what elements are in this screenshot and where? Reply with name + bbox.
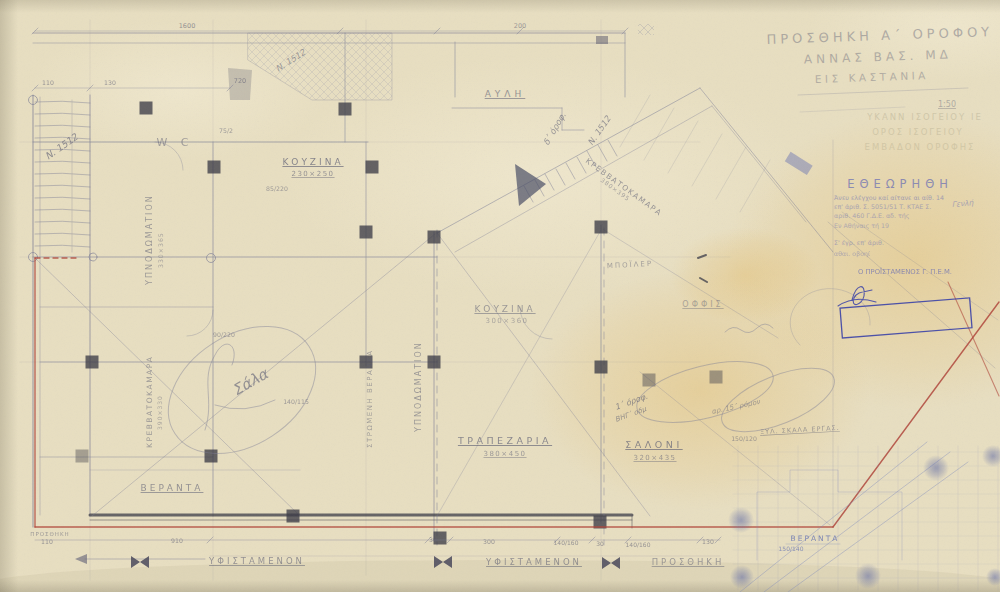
scanned-blueprint-page: ΠΡΟΣΘΗΚΗ Α΄ ΟΡΟΦΟΥ ΑΝΝΑΣ ΒΑΣ. ΜΔ ΕΙΣ ΚΑΣ… — [0, 0, 1000, 592]
paper-grain-texture — [0, 0, 1000, 592]
floor-plan-drawing: ΠΡΟΣΘΗΚΗ Α΄ ΟΡΟΦΟΥ ΑΝΝΑΣ ΒΑΣ. ΜΔ ΕΙΣ ΚΑΣ… — [0, 0, 1000, 592]
